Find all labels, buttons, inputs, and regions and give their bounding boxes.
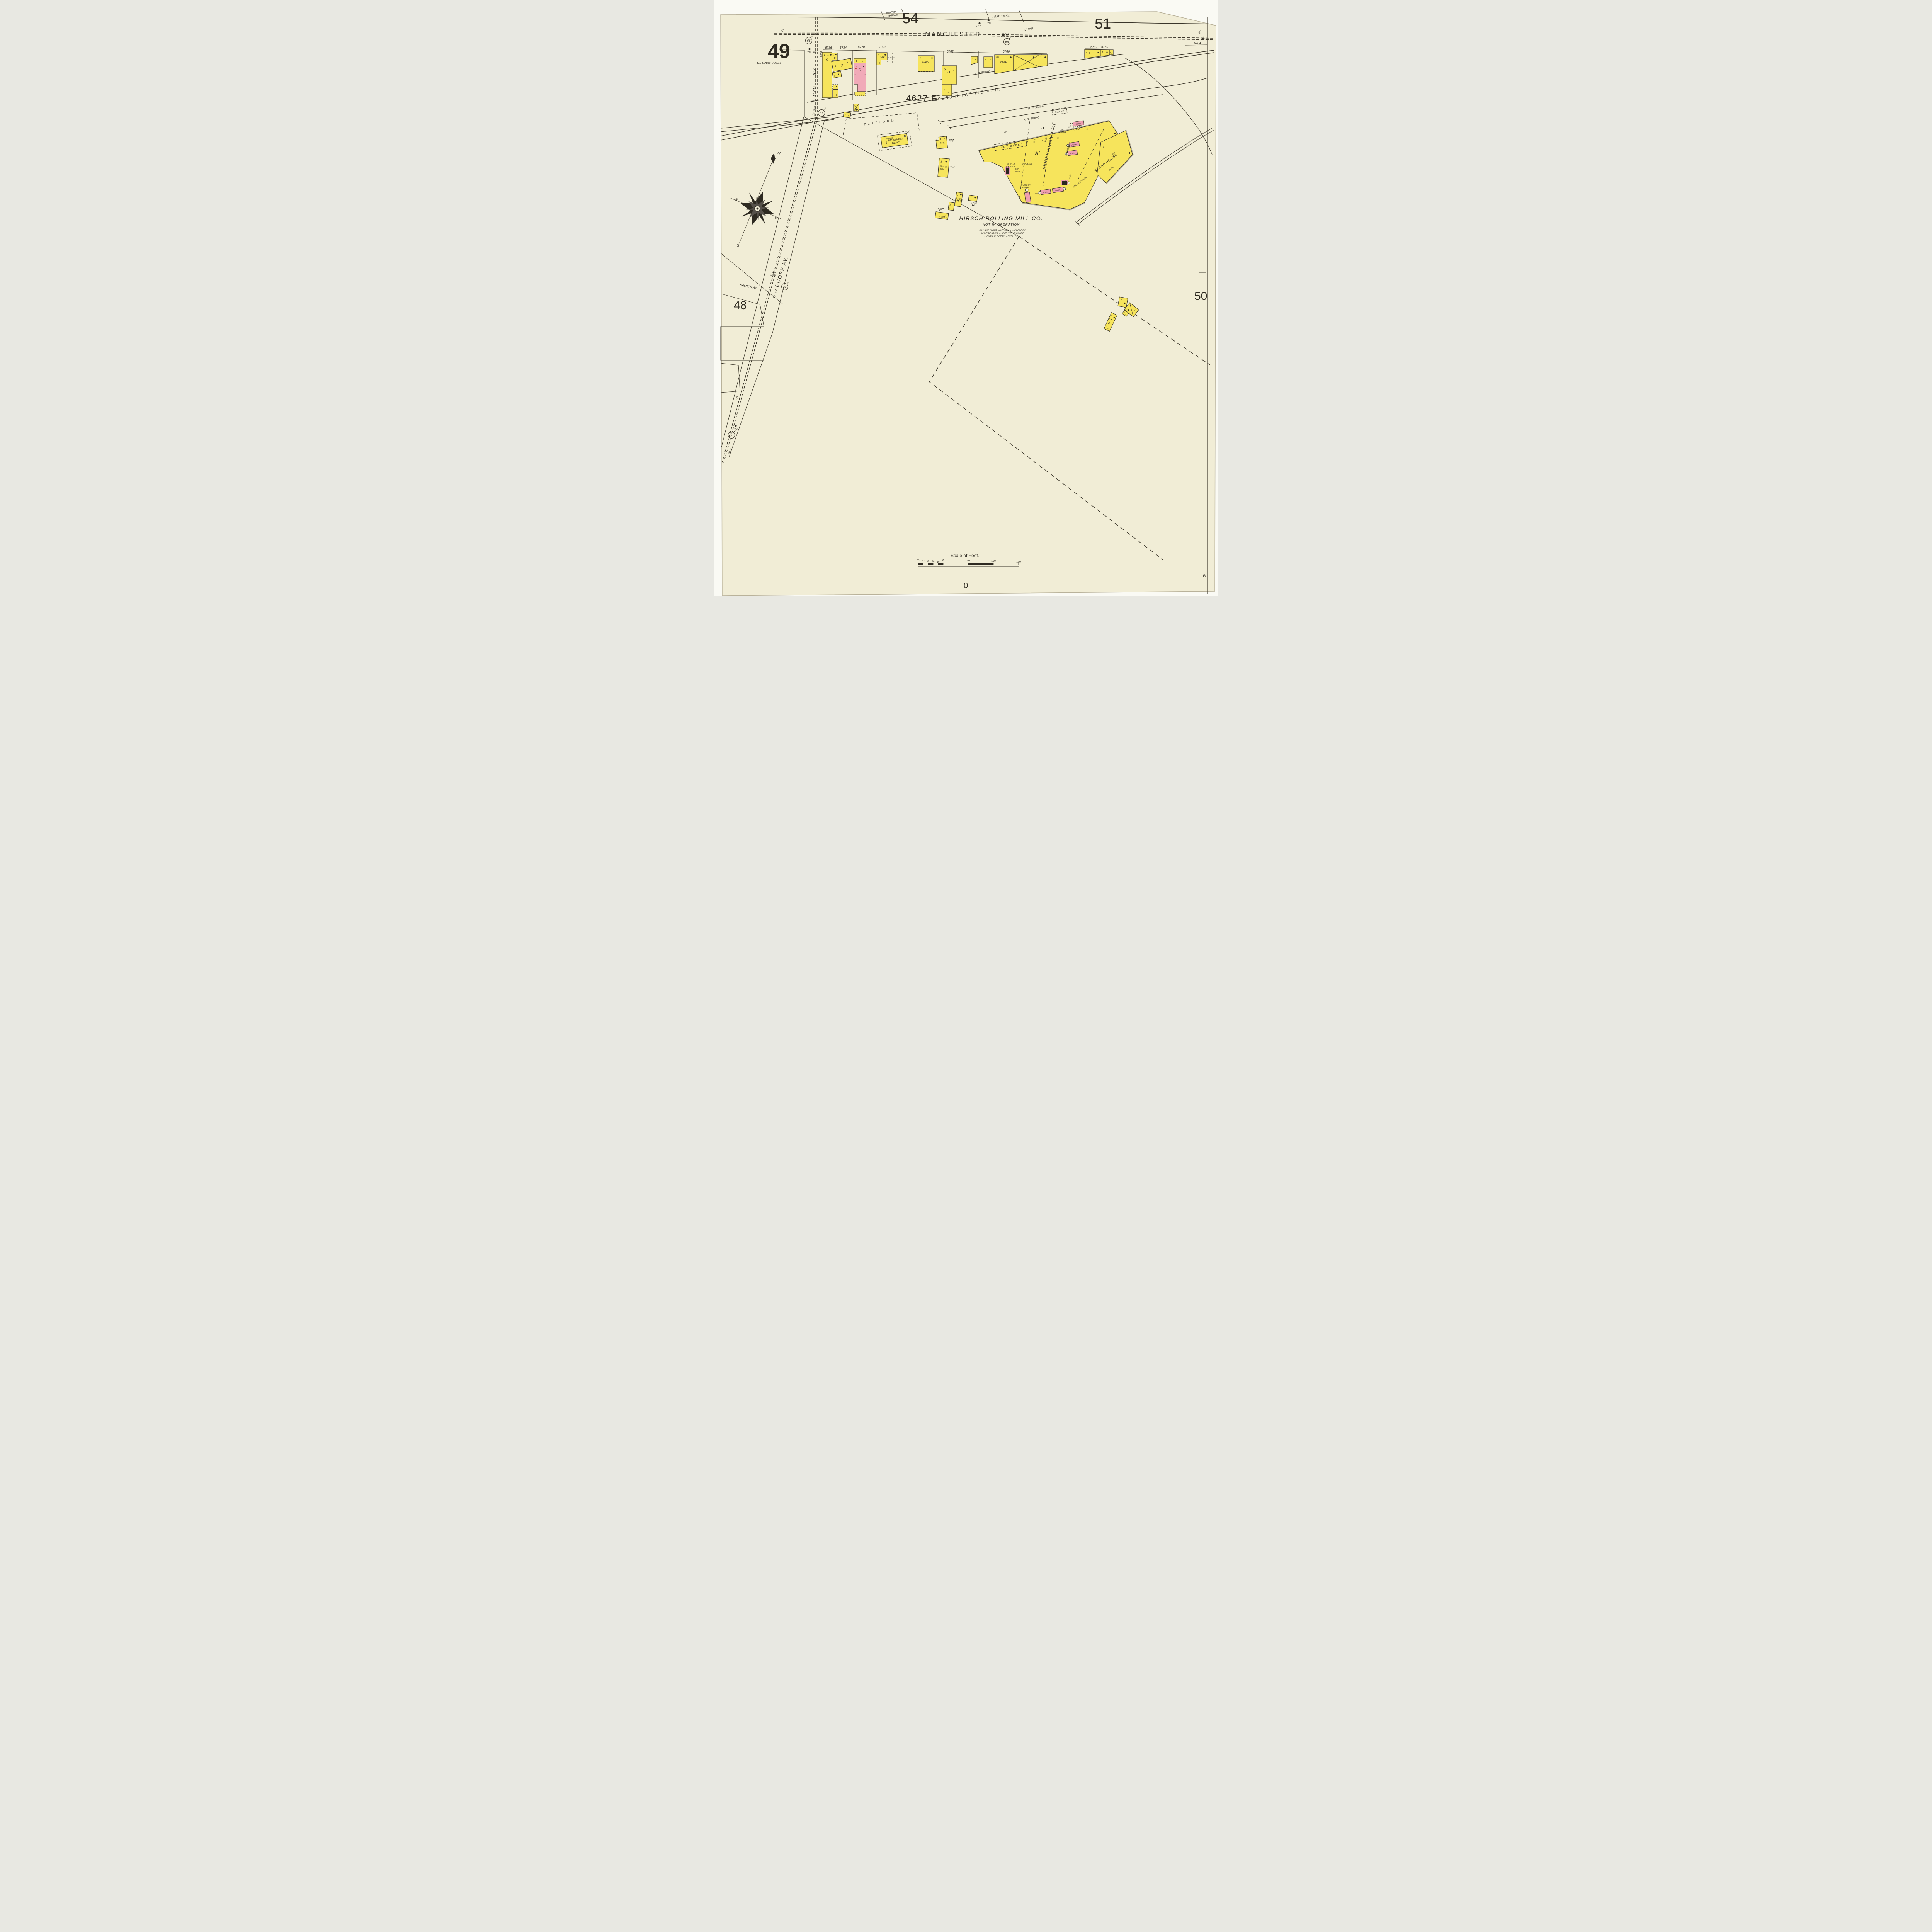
window-mark: x xyxy=(862,60,863,63)
address-label: 6732 xyxy=(1090,45,1097,49)
scale-tick-label: 0 xyxy=(942,559,944,562)
volume-label: ST. LOUIS VOL.10 xyxy=(757,61,782,65)
outbuilding xyxy=(833,85,838,89)
hydrant-label: HYD. xyxy=(770,275,776,277)
height-mark: 12 xyxy=(854,73,856,75)
mill-status: NOT IN OPERATION xyxy=(983,223,1020,226)
hydrant-dot xyxy=(735,425,736,427)
outbuilding: 1 xyxy=(1118,297,1128,307)
hydrant-label: HYD. xyxy=(976,26,982,28)
chimney-dot xyxy=(855,109,857,110)
mill-chimney-cap xyxy=(1007,166,1009,168)
dwelling-code: D xyxy=(859,68,861,72)
story-count-label: 1 xyxy=(824,54,825,56)
dwelling-code: S xyxy=(834,57,836,60)
building-D-small: 1 xyxy=(968,195,978,202)
scale-tick-label: 30 xyxy=(927,560,930,563)
block-number: 2300 xyxy=(820,51,823,58)
window-mark: x xyxy=(989,59,991,61)
story-count-label: 1 xyxy=(972,58,973,61)
boiler-circle xyxy=(1068,182,1070,184)
address-label: 6784 xyxy=(840,46,847,49)
outbuilding: 1 x xyxy=(984,57,993,68)
window-mark: x xyxy=(952,70,954,72)
hydrant-label: HYD. xyxy=(806,51,811,54)
hydrant-label: HYD. xyxy=(733,428,738,430)
chimney-dot xyxy=(1089,52,1090,53)
dwelling-code: D xyxy=(947,70,950,74)
svg-text:57: 57 xyxy=(820,111,823,115)
mill-chimney xyxy=(1005,168,1010,175)
hydrant-label: HYD. xyxy=(986,22,991,25)
building-6784-rear: 1 xyxy=(832,71,842,78)
building-store-F: 1 STORE R'M xyxy=(938,158,949,177)
building-shed: 1 SHED xyxy=(918,56,934,72)
scale-tick-label: 20 xyxy=(932,561,935,563)
feed-label: FEED xyxy=(1000,61,1007,63)
chimney-dot xyxy=(1010,56,1012,58)
story-count-label: 1 xyxy=(855,105,857,107)
svg-text:33: 33 xyxy=(783,285,787,289)
address-label: 6730 xyxy=(1101,45,1108,49)
story-count-label: 1 xyxy=(940,138,942,141)
store-label: R'M xyxy=(940,168,944,171)
story-count-label: 2 xyxy=(943,68,946,72)
adjacent-sheet-54: 54 xyxy=(902,10,918,27)
window-mark: X xyxy=(861,94,863,96)
building-annex: 1 xyxy=(1039,55,1048,67)
depot-circle-mark xyxy=(904,135,906,137)
story-count-label: 1 xyxy=(985,59,986,61)
story-count-label: 1 xyxy=(1102,51,1103,54)
depot-circle-mark xyxy=(907,131,909,133)
hydrant-dot xyxy=(978,22,980,24)
height-mark: 12 xyxy=(864,73,866,75)
match-letter-a: A xyxy=(1202,36,1205,41)
story-count-label: 1½ xyxy=(996,56,999,59)
boiler-circle xyxy=(1025,189,1028,192)
chimney-dot xyxy=(1129,152,1130,154)
address-label: 6778 xyxy=(858,46,865,49)
chimney-dot xyxy=(884,54,886,56)
story-count-label: 1 xyxy=(1040,56,1041,59)
adjacent-sheet-48: 48 xyxy=(734,299,747,312)
story-count-label: 1 xyxy=(856,60,857,63)
chimney-dot xyxy=(836,86,837,87)
compass-s: S xyxy=(737,243,739,247)
sanborn-map-sheet: EAVES 1 PASSENGER DEPOT PLATFORM 1 15' S… xyxy=(714,0,1218,596)
scale-tick-label: 100 xyxy=(991,560,996,563)
map-canvas: EAVES 1 PASSENGER DEPOT PLATFORM 1 15' S… xyxy=(714,0,1218,596)
address-label: 6774 xyxy=(879,46,886,49)
engine-label: 250 H.P. xyxy=(1059,131,1067,134)
shed-label: SHED xyxy=(922,62,929,64)
scales-label: SCALES xyxy=(888,56,895,58)
scale-tick-label: 50 xyxy=(967,560,970,562)
outbuilding: 1 x xyxy=(843,112,851,118)
hydrant-dot xyxy=(987,19,989,21)
adjacent-sheet-50: 50 xyxy=(1194,290,1207,303)
section-letter-F: “F” xyxy=(950,165,955,170)
chimney-dot xyxy=(863,66,864,67)
iron-chimney-label: IR. CH. 45' xyxy=(1007,163,1015,165)
sheet-number: 49 xyxy=(768,40,790,63)
compass-e: E xyxy=(775,216,777,220)
window-mark: x xyxy=(975,58,976,61)
story-count-label: 1 xyxy=(1093,52,1094,54)
section-letter-E: “E” xyxy=(938,207,944,212)
section-zero-mark: 0 xyxy=(964,582,968,590)
chimney-dot xyxy=(836,94,837,95)
address-label: 6786 xyxy=(825,46,832,49)
mill-note-line: NO FIRE APP'S. - HEAT: STOVE IN OFF. xyxy=(981,233,1024,235)
scale-bar-title: Scale of Feet. xyxy=(951,553,979,558)
chimney-dot xyxy=(1033,56,1034,58)
story-count-label: 1 xyxy=(944,90,945,92)
mill-note-line: LIGHTS: ELECTRIC - FUEL: COAL xyxy=(984,236,1021,238)
address-label: 6762 xyxy=(947,50,954,53)
story-count-label: 1 xyxy=(856,94,857,96)
paper-sheet xyxy=(721,12,1216,596)
section-letter-B: “B” xyxy=(949,139,954,143)
scale-tick-label: 40 xyxy=(922,560,925,562)
section-letter-D: “D” xyxy=(971,202,977,207)
engine-label: 100 H.P. xyxy=(1015,171,1022,173)
story-count-label: 1 xyxy=(980,153,981,155)
hydrant-dot xyxy=(808,48,810,50)
street-manchester-av: AV. xyxy=(1001,32,1012,38)
story-count-label: 1 xyxy=(940,160,942,163)
chimney-dot xyxy=(931,57,933,59)
story-count-label: 2 xyxy=(855,66,857,70)
story-count-label: 1 xyxy=(1015,56,1017,59)
chimney-dot xyxy=(879,63,880,64)
adjacent-sheet-51: 51 xyxy=(1095,16,1111,32)
svg-text:66: 66 xyxy=(1005,40,1009,44)
story-count-label: 1 xyxy=(920,58,921,60)
outbuilding-x: 1 xyxy=(854,104,859,111)
svg-text:66: 66 xyxy=(807,39,811,43)
svg-text:33: 33 xyxy=(730,434,733,437)
mill-company-title: HIRSCH ROLLING MILL CO. xyxy=(959,215,1043,221)
chimney-dot xyxy=(1044,56,1046,58)
chimney-dot xyxy=(835,54,837,55)
story-count-label: 1 xyxy=(1086,52,1087,54)
dim-label: 15' xyxy=(827,54,830,56)
street-ecoff-top: ECOFF AV. xyxy=(812,65,818,101)
section-letter-A: “A” xyxy=(1034,150,1040,156)
address-label: 6704 xyxy=(1194,41,1201,45)
scale-tick-label: 50 xyxy=(917,560,920,562)
chimney-dot xyxy=(1106,51,1107,53)
story-count-label: 1 xyxy=(833,94,835,96)
story-count-label: 1 xyxy=(877,62,878,64)
building-blacksmith-annex: 1 x xyxy=(948,202,955,211)
mill-note-line: DAY AND NIGHT WATCHMAN - NO CLOCK- xyxy=(979,230,1026,232)
chimney-dot xyxy=(830,54,832,56)
chimney-dot xyxy=(1114,133,1116,134)
match-letter-b: B xyxy=(1203,574,1206,578)
office-label: OFF. xyxy=(880,57,885,59)
address-label: 6760 xyxy=(1003,50,1010,53)
window-mark: x xyxy=(947,91,949,94)
dynamo-label: DYNAMO xyxy=(1022,163,1032,166)
building-feed: 1½ FEED xyxy=(995,55,1014,74)
story-count-label: 1 xyxy=(878,54,879,57)
babcock-label: BOILER xyxy=(1022,187,1029,189)
story-count-label: 1 xyxy=(833,54,834,56)
section-letter-C: “C” xyxy=(956,199,963,204)
dwelling-code: S xyxy=(826,58,828,62)
street-manchester: MANCHESTER xyxy=(925,31,981,37)
chimney-dot xyxy=(1097,52,1099,53)
hydrant-dot xyxy=(772,271,774,273)
